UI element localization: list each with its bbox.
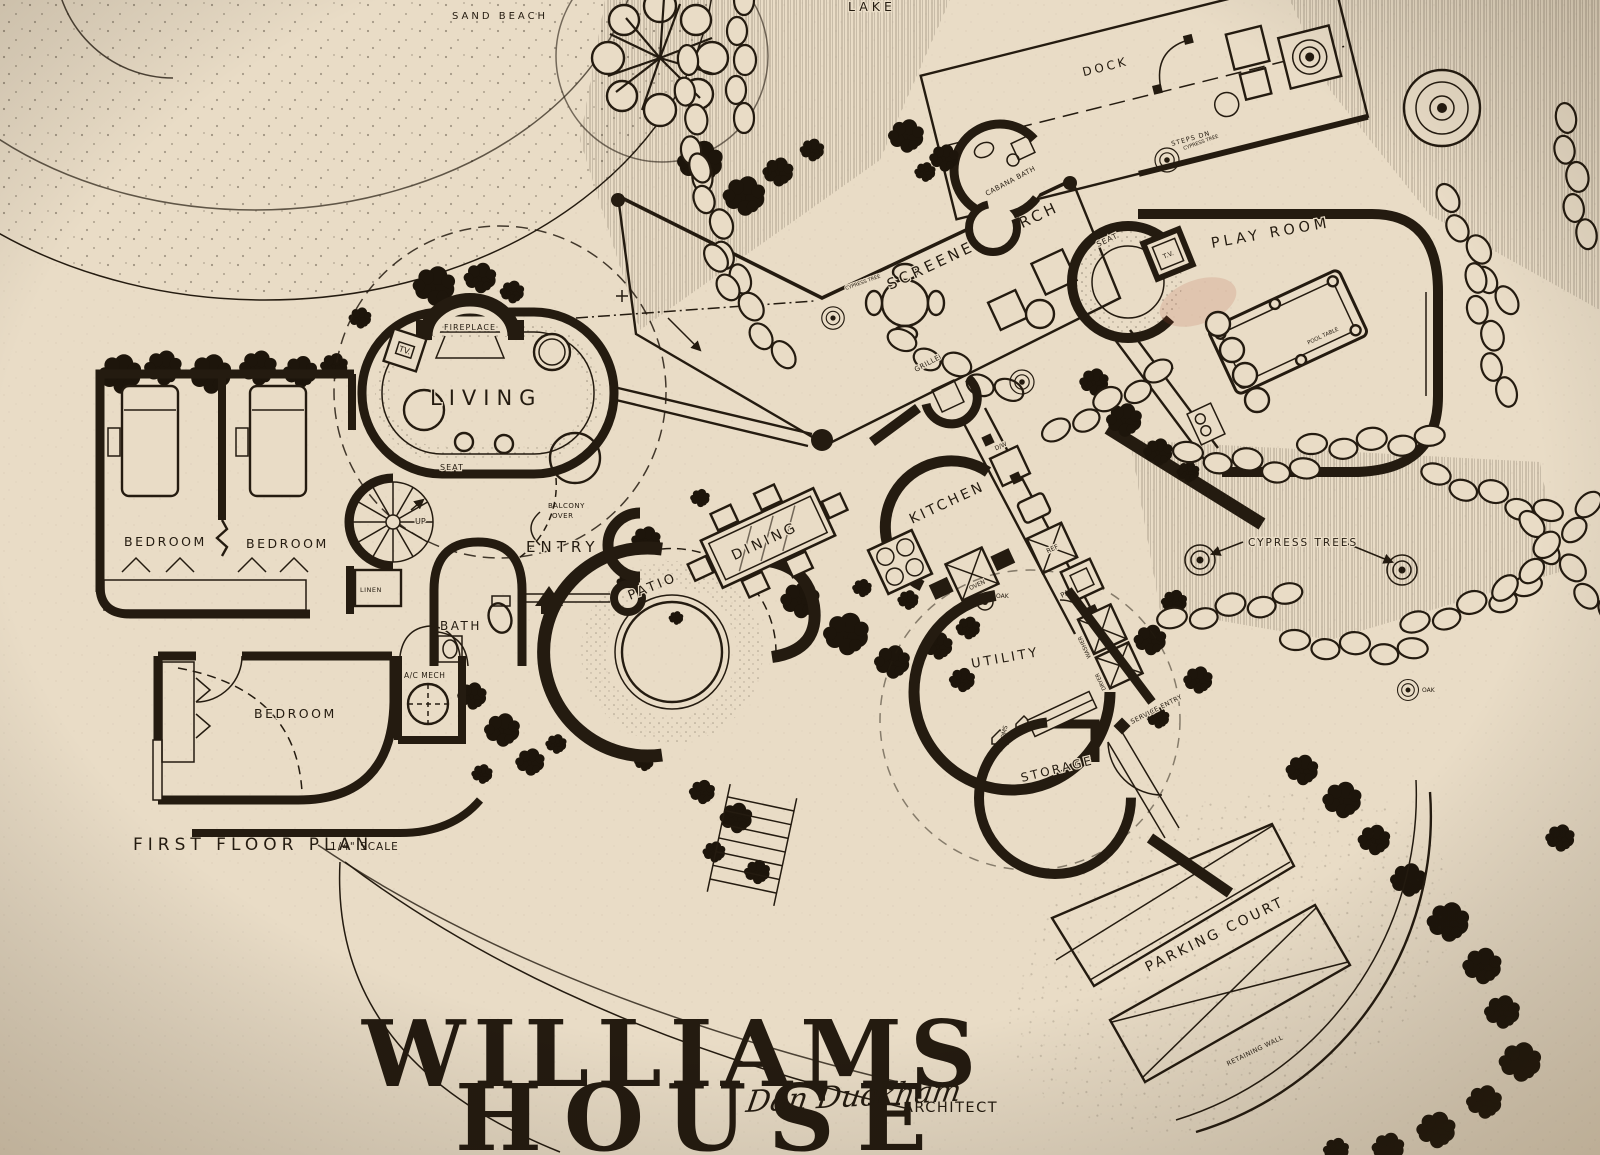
blueprint-canvas: DOCK STEPS DN LAKE SAND BEACH SCREENED P… <box>0 0 1600 1155</box>
paper-vignette <box>0 0 1600 1155</box>
